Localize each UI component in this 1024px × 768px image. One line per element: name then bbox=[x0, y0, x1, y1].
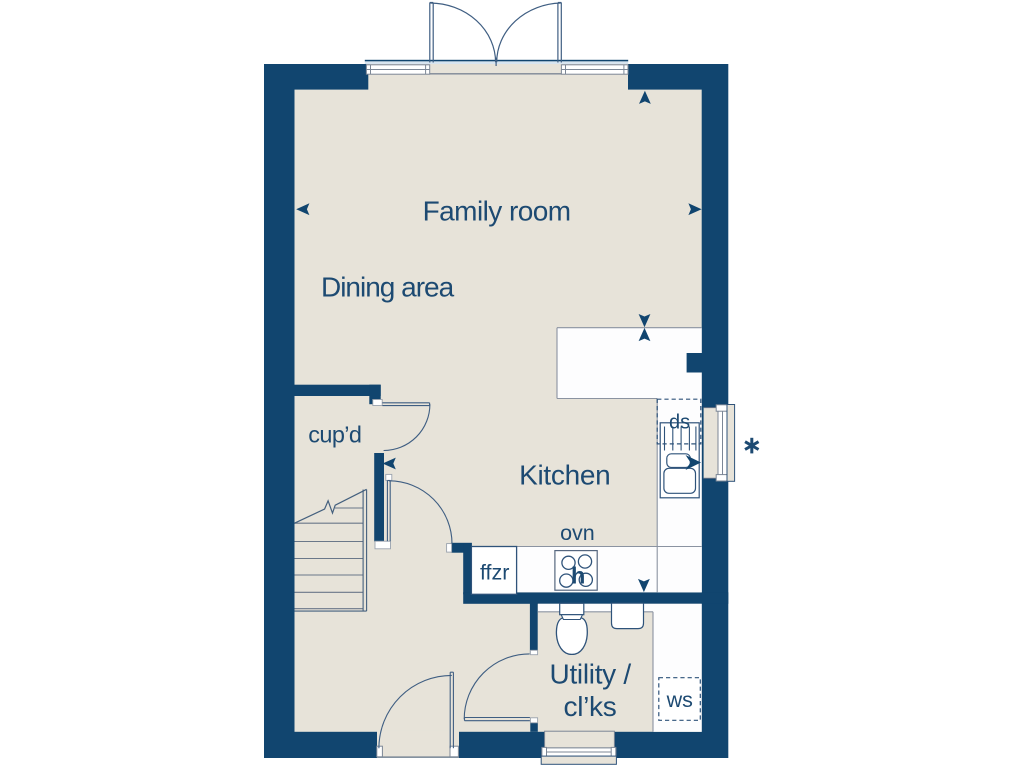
svg-text:h: h bbox=[571, 562, 585, 588]
svg-text:ffzr: ffzr bbox=[480, 560, 509, 584]
svg-text:Dining area: Dining area bbox=[321, 271, 455, 302]
svg-text:ovn: ovn bbox=[560, 521, 595, 545]
svg-text:cup’d: cup’d bbox=[308, 421, 361, 447]
svg-text:ds: ds bbox=[669, 411, 690, 433]
svg-text:Kitchen: Kitchen bbox=[519, 460, 610, 491]
svg-text:ws: ws bbox=[666, 688, 693, 712]
svg-text:Utility /: Utility / bbox=[550, 659, 632, 690]
svg-text:cl’ks: cl’ks bbox=[564, 691, 617, 722]
svg-text:Family room: Family room bbox=[423, 196, 571, 227]
